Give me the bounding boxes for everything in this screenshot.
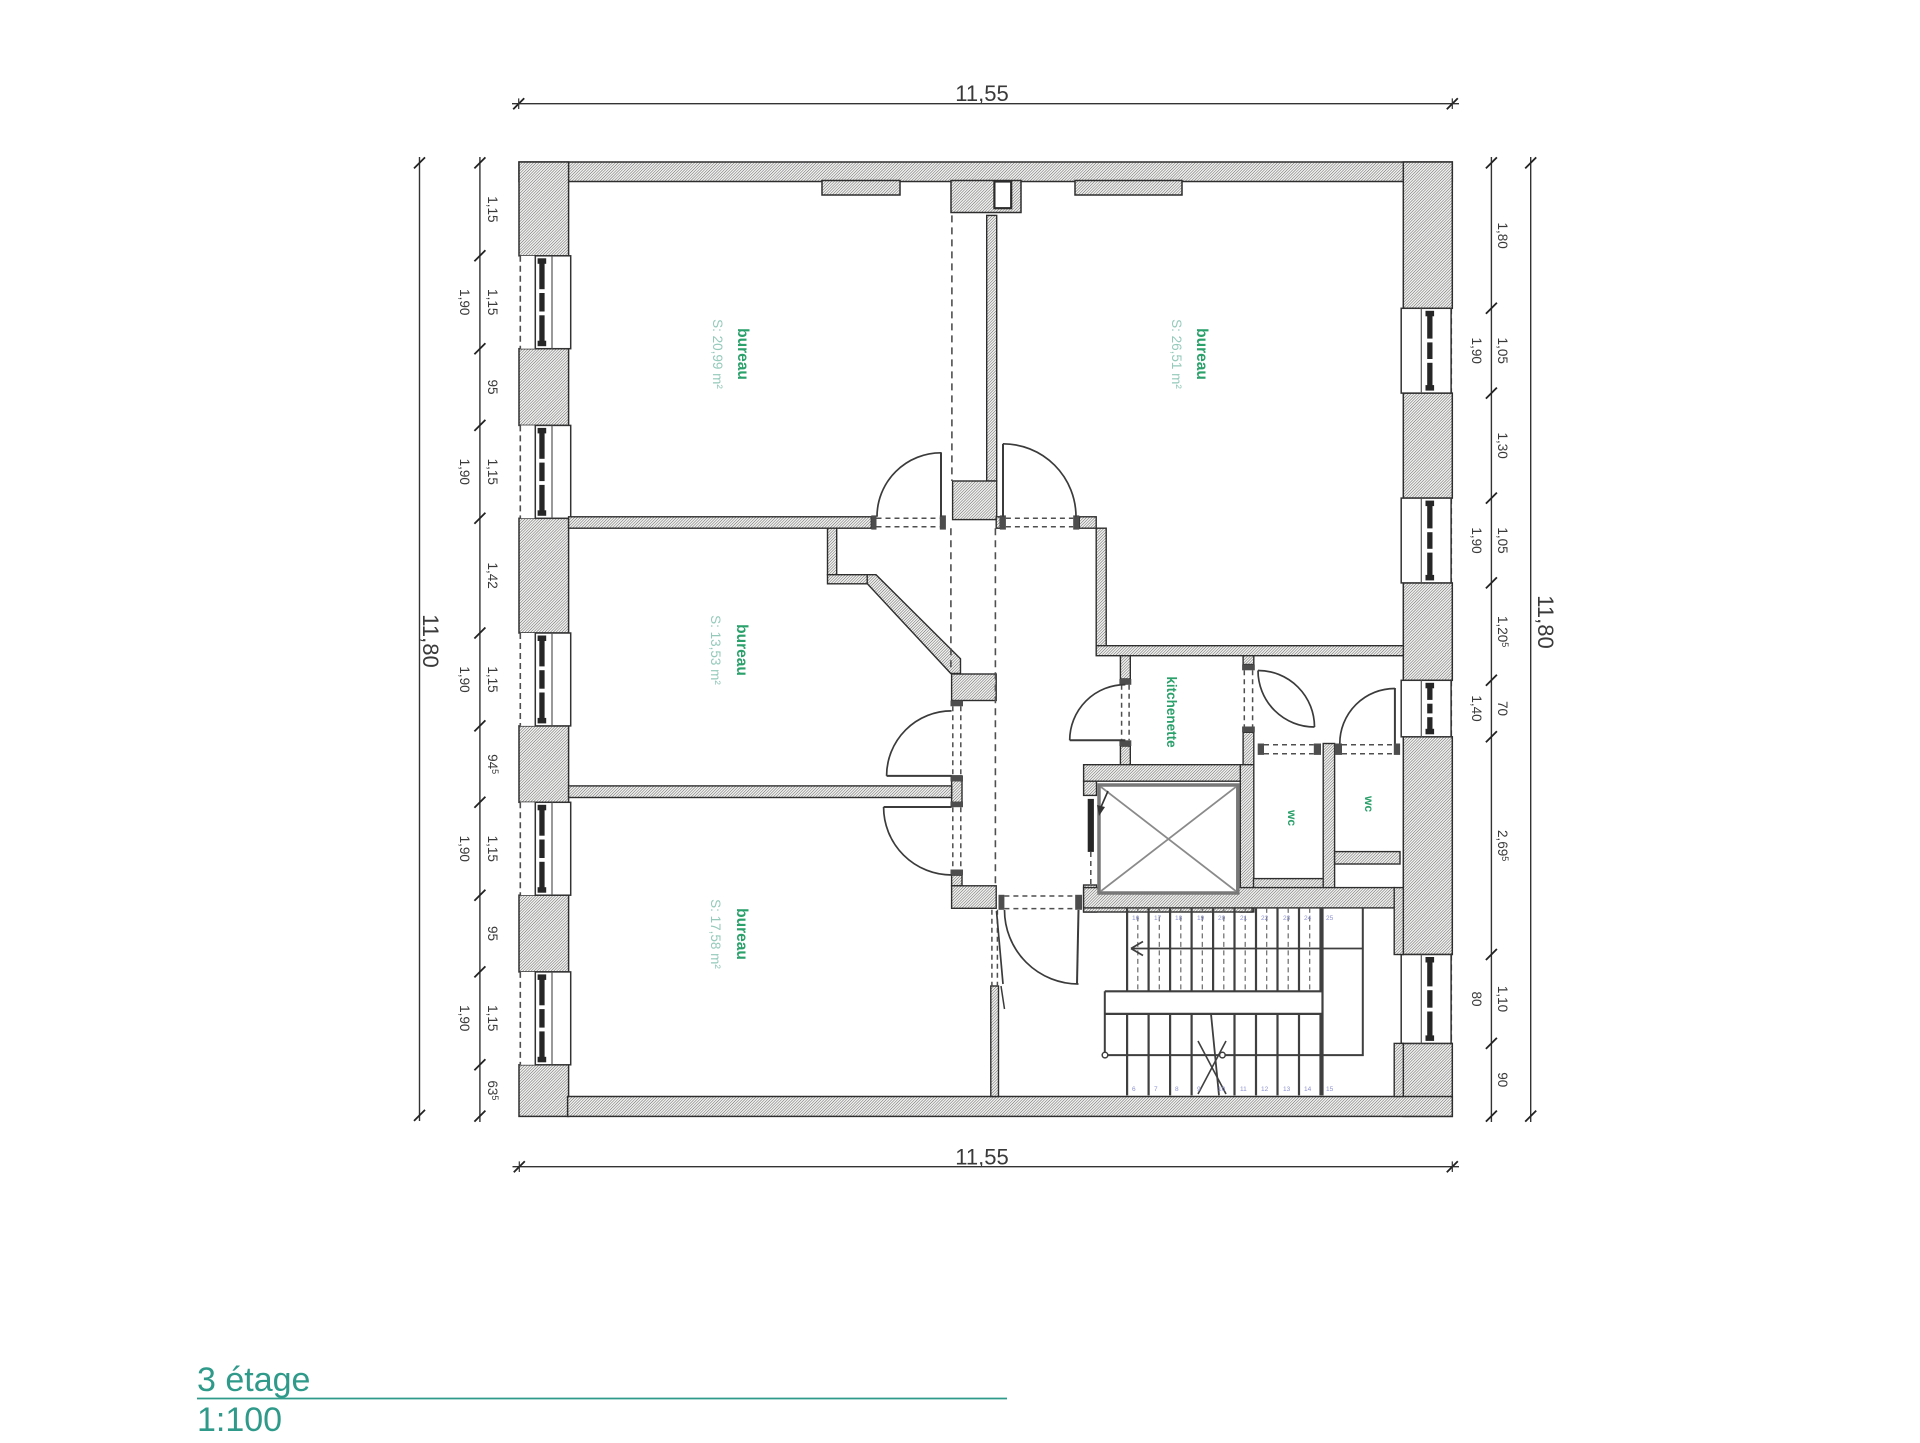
svg-text:70: 70 xyxy=(1495,701,1510,716)
svg-text:20: 20 xyxy=(1218,915,1226,922)
svg-text:1,90: 1,90 xyxy=(457,666,472,692)
svg-text:3 étage: 3 étage xyxy=(197,1361,310,1399)
svg-text:1,15: 1,15 xyxy=(485,1005,500,1031)
svg-text:1,15: 1,15 xyxy=(485,459,500,485)
svg-text:1,42: 1,42 xyxy=(485,562,500,588)
svg-text:95: 95 xyxy=(485,379,500,394)
svg-text:11: 11 xyxy=(1240,1086,1247,1093)
svg-text:7: 7 xyxy=(1154,1086,1158,1093)
svg-text:S: 26,51 m²: S: 26,51 m² xyxy=(1169,319,1184,389)
svg-text:23: 23 xyxy=(1283,915,1291,922)
svg-text:1,15: 1,15 xyxy=(485,836,500,862)
svg-text:1:100: 1:100 xyxy=(197,1401,282,1439)
svg-text:1,90: 1,90 xyxy=(457,836,472,862)
svg-text:22: 22 xyxy=(1261,915,1269,922)
svg-text:1,15: 1,15 xyxy=(485,196,500,222)
svg-text:bureau: bureau xyxy=(1193,328,1210,380)
svg-text:95: 95 xyxy=(485,926,500,941)
svg-text:1,90: 1,90 xyxy=(457,289,472,315)
svg-text:1,10: 1,10 xyxy=(1495,986,1510,1012)
svg-text:10: 10 xyxy=(1218,1086,1226,1093)
svg-text:11,55: 11,55 xyxy=(955,1145,1008,1170)
svg-text:17: 17 xyxy=(1154,915,1162,922)
svg-text:1,15: 1,15 xyxy=(485,289,500,315)
svg-text:1,80: 1,80 xyxy=(1495,222,1510,248)
svg-text:24: 24 xyxy=(1304,915,1312,922)
svg-text:1,90: 1,90 xyxy=(457,459,472,485)
svg-text:19: 19 xyxy=(1197,915,1205,922)
svg-text:11,80: 11,80 xyxy=(1533,595,1558,648)
svg-text:wc: wc xyxy=(1285,809,1299,826)
svg-text:11,80: 11,80 xyxy=(418,614,443,667)
svg-text:S: 17,58 m²: S: 17,58 m² xyxy=(708,899,723,969)
svg-text:80: 80 xyxy=(1469,991,1484,1006)
svg-text:15: 15 xyxy=(1326,1086,1334,1093)
svg-text:9: 9 xyxy=(1197,1086,1201,1093)
svg-text:25: 25 xyxy=(1326,915,1334,922)
svg-text:bureau: bureau xyxy=(734,328,751,380)
svg-text:1,40: 1,40 xyxy=(1469,695,1484,721)
svg-text:1,90: 1,90 xyxy=(1469,527,1484,553)
svg-text:bureau: bureau xyxy=(733,624,750,676)
svg-text:kitchenette: kitchenette xyxy=(1164,676,1179,748)
svg-text:14: 14 xyxy=(1304,1086,1312,1093)
svg-text:11,55: 11,55 xyxy=(955,81,1008,106)
svg-text:21: 21 xyxy=(1240,915,1248,922)
svg-text:1,05: 1,05 xyxy=(1495,338,1510,364)
svg-text:16: 16 xyxy=(1132,915,1140,922)
svg-text:13: 13 xyxy=(1283,1086,1291,1093)
svg-text:1,05: 1,05 xyxy=(1495,527,1510,553)
svg-text:6: 6 xyxy=(1132,1086,1136,1093)
svg-text:wc: wc xyxy=(1362,795,1376,812)
svg-text:1,15: 1,15 xyxy=(485,666,500,692)
svg-text:8: 8 xyxy=(1175,1086,1179,1093)
svg-text:1,30: 1,30 xyxy=(1495,432,1510,458)
svg-text:S: 20,99 m²: S: 20,99 m² xyxy=(710,319,725,389)
svg-text:S: 13,53 m²: S: 13,53 m² xyxy=(708,615,723,685)
svg-text:18: 18 xyxy=(1175,915,1183,922)
svg-text:12: 12 xyxy=(1261,1086,1269,1093)
svg-text:bureau: bureau xyxy=(733,908,750,960)
svg-text:90: 90 xyxy=(1495,1072,1510,1087)
svg-text:1,90: 1,90 xyxy=(1469,338,1484,364)
svg-text:1,90: 1,90 xyxy=(457,1005,472,1031)
